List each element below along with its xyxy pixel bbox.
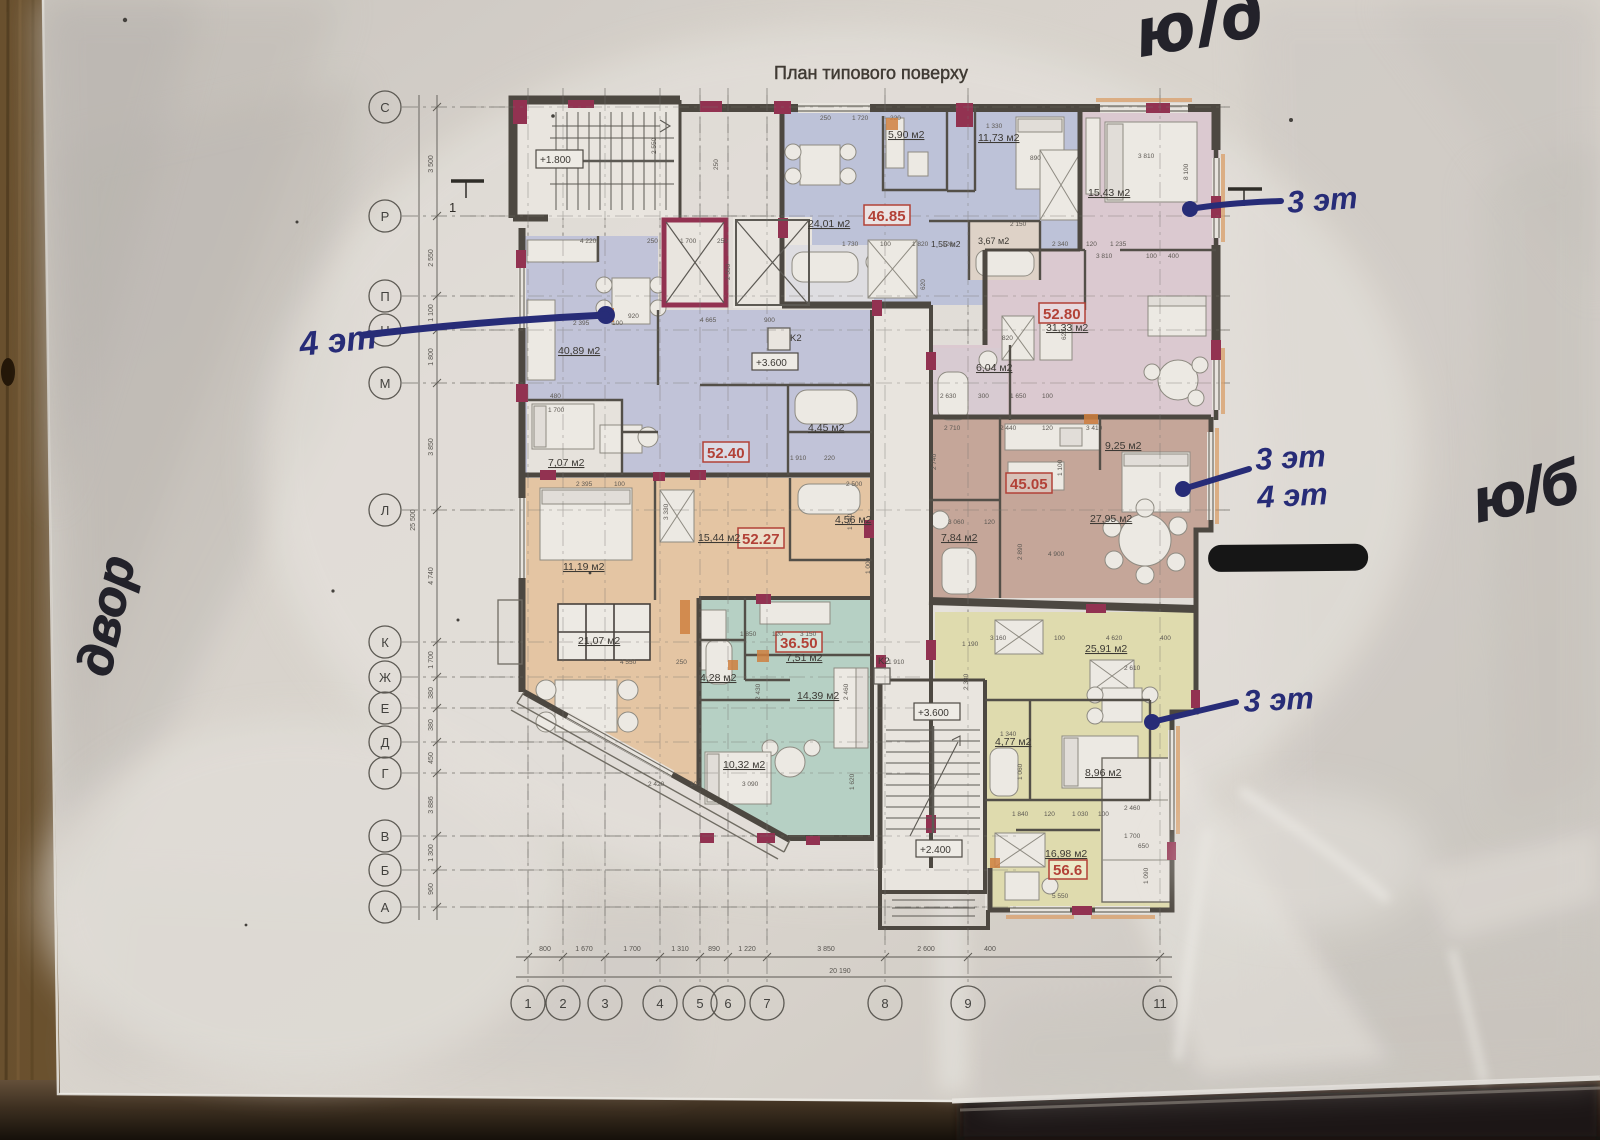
svg-text:3 эт: 3 эт xyxy=(1286,180,1359,220)
svg-text:3 эт: 3 эт xyxy=(1254,438,1326,477)
svg-text:3 эт: 3 эт xyxy=(1242,680,1314,719)
svg-text:4 эт: 4 эт xyxy=(1255,476,1328,515)
